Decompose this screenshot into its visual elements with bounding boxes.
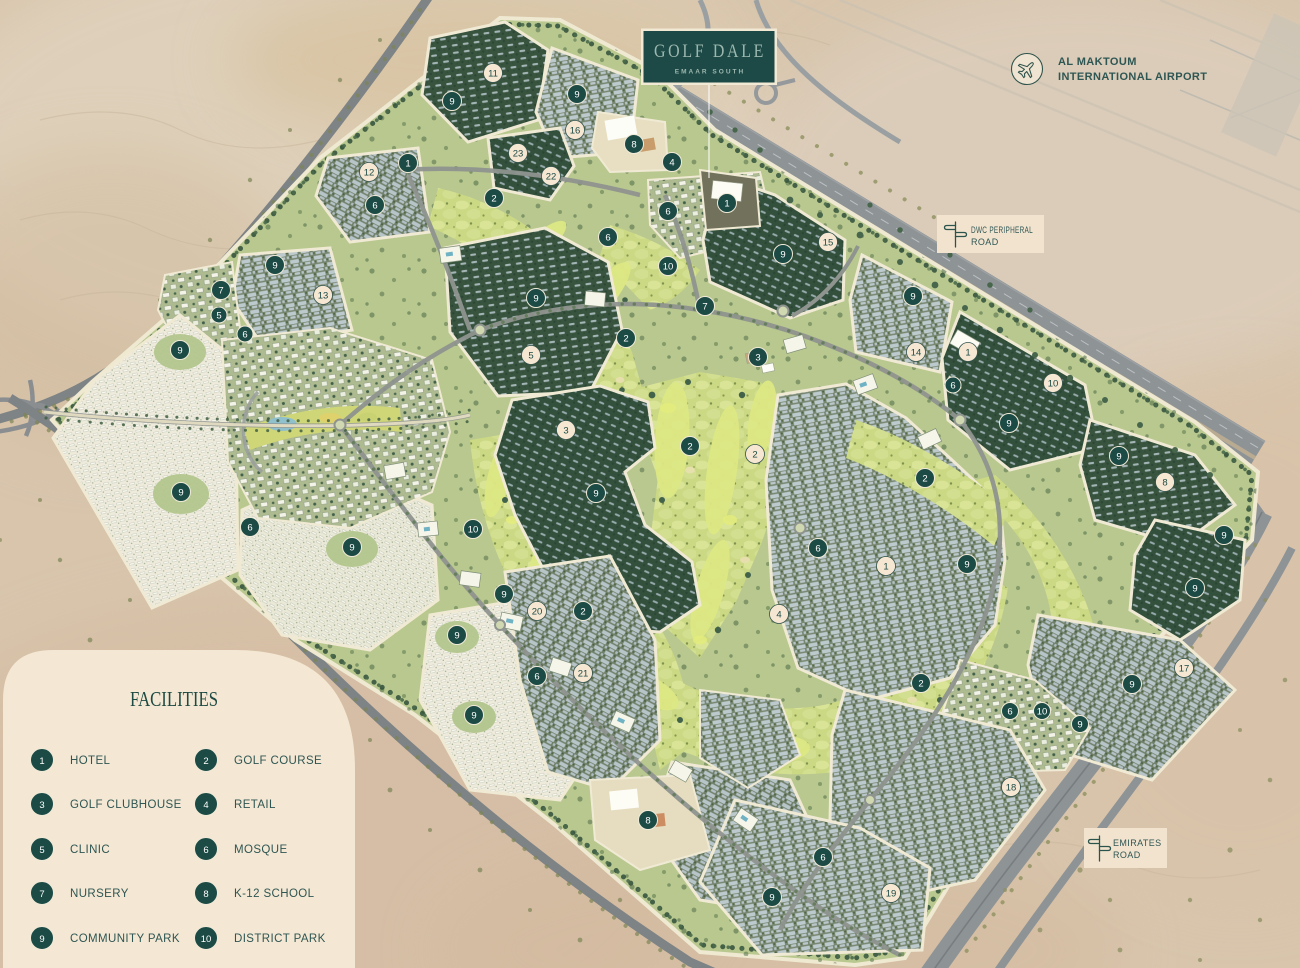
svg-text:2: 2 <box>752 449 757 460</box>
svg-text:9: 9 <box>178 487 183 498</box>
svg-text:22: 22 <box>546 171 557 182</box>
svg-text:9: 9 <box>471 710 476 721</box>
svg-text:9: 9 <box>910 291 915 302</box>
svg-text:17: 17 <box>1179 663 1190 674</box>
svg-text:9: 9 <box>533 293 538 304</box>
svg-text:10: 10 <box>1048 378 1059 389</box>
svg-text:9: 9 <box>1192 583 1197 594</box>
svg-text:11: 11 <box>488 68 498 79</box>
svg-text:20: 20 <box>532 606 543 617</box>
svg-text:6: 6 <box>820 852 825 863</box>
svg-text:18: 18 <box>1006 782 1017 793</box>
svg-text:2: 2 <box>918 678 923 689</box>
svg-text:7: 7 <box>218 285 223 296</box>
svg-text:GOLF CLUBHOUSE: GOLF CLUBHOUSE <box>70 799 182 811</box>
svg-text:10: 10 <box>468 524 479 535</box>
svg-text:6: 6 <box>605 232 610 243</box>
svg-text:2: 2 <box>491 193 496 204</box>
svg-text:GOLF COURSE: GOLF COURSE <box>234 755 322 767</box>
svg-text:5: 5 <box>39 845 44 856</box>
svg-text:23: 23 <box>513 148 524 159</box>
svg-text:19: 19 <box>886 888 897 899</box>
svg-text:8: 8 <box>1162 477 1167 488</box>
svg-text:6: 6 <box>372 200 377 211</box>
svg-text:1: 1 <box>965 347 970 358</box>
svg-text:7: 7 <box>702 301 707 312</box>
svg-text:9: 9 <box>769 892 774 903</box>
svg-text:RETAIL: RETAIL <box>234 799 276 811</box>
svg-text:10: 10 <box>663 261 674 272</box>
svg-text:2: 2 <box>922 473 927 484</box>
svg-text:ROAD: ROAD <box>971 237 999 247</box>
svg-text:9: 9 <box>1129 679 1134 690</box>
svg-text:6: 6 <box>815 543 820 554</box>
svg-text:9: 9 <box>1006 418 1011 429</box>
svg-text:ROAD: ROAD <box>1113 850 1141 860</box>
svg-text:2: 2 <box>623 333 628 344</box>
svg-text:8: 8 <box>645 815 650 826</box>
svg-text:7: 7 <box>39 889 44 900</box>
svg-text:EMAAR SOUTH: EMAAR SOUTH <box>675 69 745 76</box>
svg-text:13: 13 <box>318 290 329 301</box>
svg-text:1: 1 <box>724 198 729 209</box>
svg-text:AL MAKTOUM: AL MAKTOUM <box>1058 56 1137 68</box>
svg-text:15: 15 <box>823 237 834 248</box>
svg-text:6: 6 <box>1007 706 1012 717</box>
svg-text:4: 4 <box>776 609 781 620</box>
svg-text:8: 8 <box>631 139 636 150</box>
svg-text:16: 16 <box>570 125 581 136</box>
svg-text:1: 1 <box>883 561 888 572</box>
svg-text:9: 9 <box>1077 719 1082 730</box>
svg-text:DWC PERIPHERAL: DWC PERIPHERAL <box>971 225 1033 235</box>
svg-text:9: 9 <box>501 589 506 600</box>
svg-text:9: 9 <box>349 542 354 553</box>
svg-text:FACILITIES: FACILITIES <box>130 687 218 711</box>
svg-text:2: 2 <box>580 606 585 617</box>
svg-text:GOLF DALE: GOLF DALE <box>654 41 766 62</box>
svg-text:K-12 SCHOOL: K-12 SCHOOL <box>234 888 315 900</box>
svg-text:MOSQUE: MOSQUE <box>234 844 288 856</box>
svg-text:9: 9 <box>780 249 785 260</box>
svg-text:9: 9 <box>39 934 44 945</box>
svg-text:INTERNATIONAL AIRPORT: INTERNATIONAL AIRPORT <box>1058 71 1207 83</box>
svg-text:4: 4 <box>203 800 208 811</box>
svg-text:9: 9 <box>1221 530 1226 541</box>
svg-text:6: 6 <box>203 845 208 856</box>
svg-text:12: 12 <box>364 167 375 178</box>
svg-text:3: 3 <box>563 425 568 436</box>
svg-text:9: 9 <box>272 260 277 271</box>
svg-text:10: 10 <box>201 934 212 945</box>
svg-text:4: 4 <box>669 157 674 168</box>
svg-text:10: 10 <box>1037 706 1048 717</box>
svg-text:9: 9 <box>964 559 969 570</box>
svg-text:14: 14 <box>911 347 922 358</box>
svg-text:6: 6 <box>950 380 955 391</box>
svg-text:8: 8 <box>203 889 208 900</box>
svg-text:DISTRICT PARK: DISTRICT PARK <box>234 933 326 945</box>
svg-text:6: 6 <box>534 671 539 682</box>
svg-text:9: 9 <box>454 630 459 641</box>
svg-text:CLINIC: CLINIC <box>70 844 110 856</box>
svg-text:1: 1 <box>405 158 410 169</box>
svg-text:2: 2 <box>203 756 208 767</box>
svg-text:6: 6 <box>242 329 247 340</box>
svg-text:1: 1 <box>39 756 44 767</box>
svg-text:9: 9 <box>574 89 579 100</box>
svg-text:9: 9 <box>177 345 182 356</box>
svg-text:9: 9 <box>1116 451 1121 462</box>
svg-text:NURSERY: NURSERY <box>70 888 129 900</box>
svg-text:HOTEL: HOTEL <box>70 755 111 767</box>
svg-text:EMIRATES: EMIRATES <box>1113 838 1162 848</box>
svg-text:6: 6 <box>247 522 252 533</box>
svg-text:COMMUNITY PARK: COMMUNITY PARK <box>70 933 180 945</box>
svg-text:6: 6 <box>665 206 670 217</box>
svg-text:5: 5 <box>216 310 221 321</box>
svg-text:5: 5 <box>528 350 533 361</box>
svg-text:21: 21 <box>578 668 589 679</box>
svg-text:2: 2 <box>687 441 692 452</box>
svg-text:3: 3 <box>39 800 44 811</box>
svg-text:3: 3 <box>755 352 760 363</box>
svg-text:9: 9 <box>593 488 598 499</box>
svg-text:9: 9 <box>449 96 454 107</box>
